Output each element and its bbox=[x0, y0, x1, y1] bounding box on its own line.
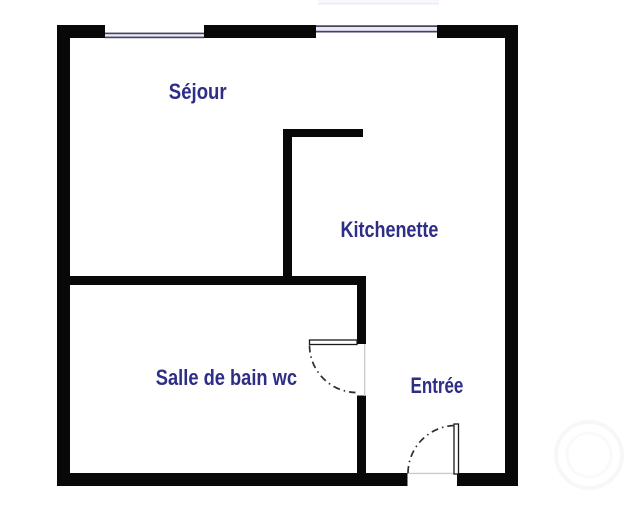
svg-text:Salle de bain wc: Salle de bain wc bbox=[156, 367, 297, 391]
svg-text:Entrée: Entrée bbox=[411, 374, 464, 399]
svg-text:Kitchenette: Kitchenette bbox=[341, 218, 439, 242]
svg-text:Séjour: Séjour bbox=[169, 81, 227, 105]
